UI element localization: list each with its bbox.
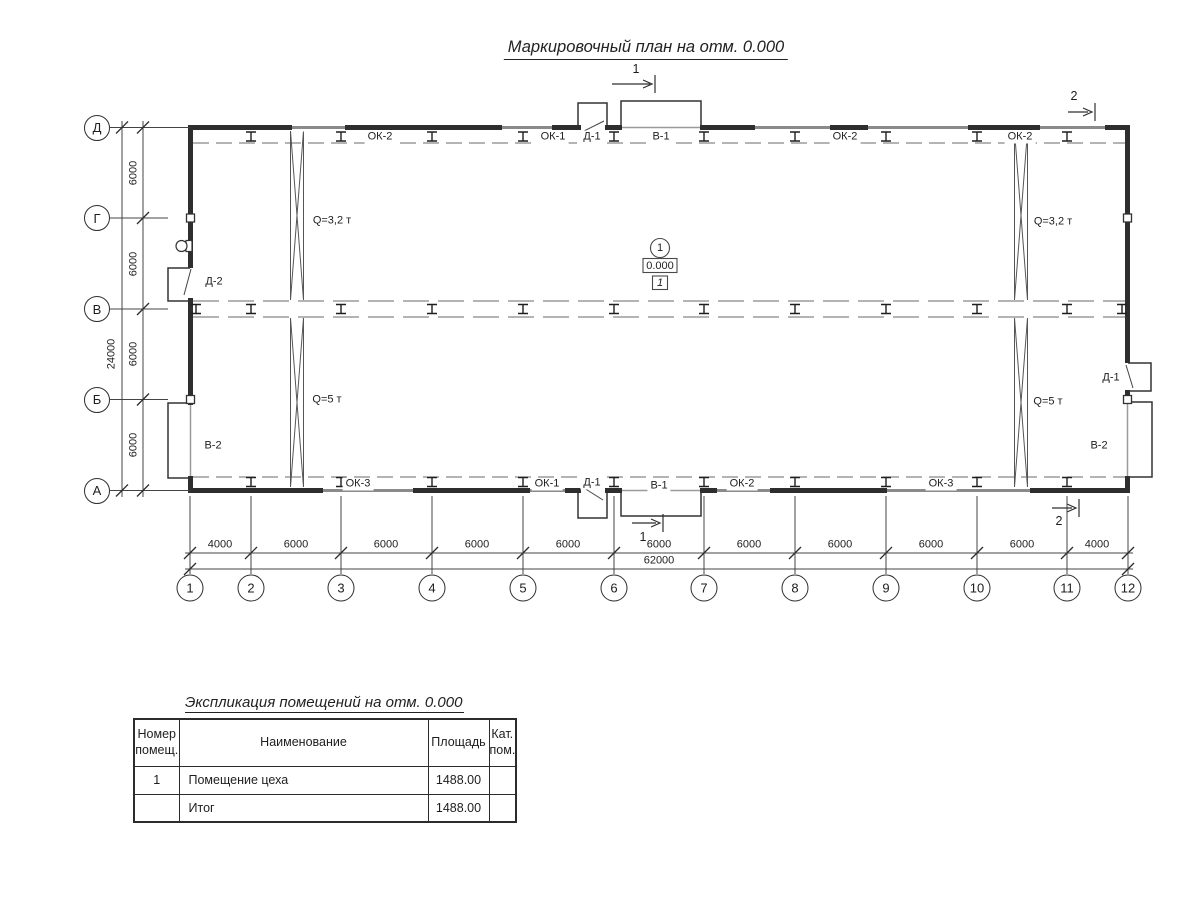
cell-room-number: 1 xyxy=(134,766,179,794)
col-axis-bubble: 8 xyxy=(782,575,809,602)
window-door-tag: В-2 xyxy=(204,441,221,452)
table-row: Итог 1488.00 xyxy=(134,794,516,822)
room-marker-number: 1 xyxy=(657,242,663,254)
exterior-walls xyxy=(188,125,1130,493)
window-door-tag: ОК-1 xyxy=(538,131,569,144)
dimension-label: 6000 xyxy=(919,540,943,551)
cell-room-area: 1488.00 xyxy=(428,766,489,794)
column-marks xyxy=(191,132,1127,487)
section-marks xyxy=(612,75,1095,532)
table-title: Экспликация помещений на отм. 0.000 xyxy=(185,694,464,713)
row-axis-bubble: Г xyxy=(84,205,110,231)
window-door-tag: В-2 xyxy=(1090,441,1107,452)
dimension-label: 6000 xyxy=(129,342,140,366)
dimension-label: 6000 xyxy=(129,252,140,276)
row-axis-lines xyxy=(193,143,1125,477)
col-header-number: Номер помещ. xyxy=(134,719,179,766)
cell-room-category xyxy=(489,766,516,794)
row-axis-bubble: Б xyxy=(84,387,110,413)
row-axis-bubble: В xyxy=(84,296,110,322)
room-marker-elevation: 0.000 xyxy=(646,260,674,272)
window-door-tag: Д-1 xyxy=(580,477,603,490)
section-mark-label: 2 xyxy=(1071,90,1078,103)
window-door-tag: ОК-2 xyxy=(727,478,758,491)
window-door-tag: ОК-2 xyxy=(365,131,396,144)
dimension-label: 6000 xyxy=(828,540,852,551)
col-header-name: Наименование xyxy=(179,719,428,766)
col-axis-bubble: 10 xyxy=(964,575,991,602)
dimension-label: 6000 xyxy=(129,433,140,457)
dimension-label: 6000 xyxy=(737,540,761,551)
window-door-tag: ОК-3 xyxy=(926,478,957,491)
dimension-label: 6000 xyxy=(556,540,580,551)
cell-room-name: Помещение цеха xyxy=(179,766,428,794)
col-axis-bubble: 2 xyxy=(238,575,265,602)
left-dimension-chain xyxy=(110,121,190,497)
window-door-tag: ОК-2 xyxy=(1005,131,1036,144)
col-axis-bubble: 1 xyxy=(177,575,204,602)
dimension-label: 6000 xyxy=(129,161,140,185)
dimension-label: 6000 xyxy=(374,540,398,551)
dimension-label: 4000 xyxy=(208,540,232,551)
window-door-tag: ОК-1 xyxy=(532,478,563,491)
row-axis-bubble: Д xyxy=(84,115,110,141)
col-axis-bubble: 3 xyxy=(328,575,355,602)
crane-capacity-label: Q=5 т xyxy=(1033,397,1062,408)
cell-total-area: 1488.00 xyxy=(428,794,489,822)
floor-plan-geometry xyxy=(0,0,1200,660)
window-door-tag: В-1 xyxy=(649,131,672,144)
col-axis-bubble: 12 xyxy=(1115,575,1142,602)
col-axis-bubble: 11 xyxy=(1054,575,1081,602)
drawing-sheet: Маркировочный план на отм. 0.000 xyxy=(0,0,1200,900)
crane-capacity-label: Q=3,2 т xyxy=(1034,217,1072,228)
crane-capacity-label: Q=3,2 т xyxy=(313,216,351,227)
col-header-category: Кат. пом. xyxy=(489,719,516,766)
col-axis-bubble: 4 xyxy=(419,575,446,602)
room-explication-table: Номер помещ. Наименование Площадь Кат. п… xyxy=(133,718,517,823)
total-dimension-label: 62000 xyxy=(644,556,675,567)
cell-total-category xyxy=(489,794,516,822)
dimension-label: 6000 xyxy=(284,540,308,551)
fire-cabinet-icon xyxy=(176,241,192,252)
dimension-label: 24000 xyxy=(107,339,118,370)
window-door-tag: Д-1 xyxy=(1102,373,1119,384)
table-row: 1 Помещение цеха 1488.00 xyxy=(134,766,516,794)
dimension-label: 4000 xyxy=(1085,540,1109,551)
window-door-tag: ОК-3 xyxy=(343,478,374,491)
room-marker-tag: 1 xyxy=(657,277,663,289)
dimension-label: 6000 xyxy=(1010,540,1034,551)
col-axis-bubble: 5 xyxy=(510,575,537,602)
crane-beam-left xyxy=(291,131,304,487)
crane-beam-right xyxy=(1015,131,1028,487)
table-header-row: Номер помещ. Наименование Площадь Кат. п… xyxy=(134,719,516,766)
dimension-label: 6000 xyxy=(647,540,671,551)
floor-plan: ДГВБА12345678910111260006000600060002400… xyxy=(0,0,1200,660)
cell-total-label: Итог xyxy=(179,794,428,822)
section-mark-label: 1 xyxy=(633,63,640,76)
vestibules xyxy=(168,101,1152,518)
col-header-area: Площадь xyxy=(428,719,489,766)
window-door-tag: Д-2 xyxy=(205,277,222,288)
openings-sides xyxy=(184,268,1133,476)
col-axis-bubble: 9 xyxy=(873,575,900,602)
section-mark-label: 1 xyxy=(640,531,647,544)
window-door-tag: Д-1 xyxy=(580,131,603,144)
window-door-tag: ОК-2 xyxy=(830,131,861,144)
cell-total-number xyxy=(134,794,179,822)
col-axis-bubble: 6 xyxy=(601,575,628,602)
crane-capacity-label: Q=5 т xyxy=(312,395,341,406)
section-mark-label: 2 xyxy=(1056,515,1063,528)
col-axis-bubble: 7 xyxy=(691,575,718,602)
row-axis-bubble: А xyxy=(84,478,110,504)
window-door-tag: В-1 xyxy=(647,480,670,493)
dimension-label: 6000 xyxy=(465,540,489,551)
